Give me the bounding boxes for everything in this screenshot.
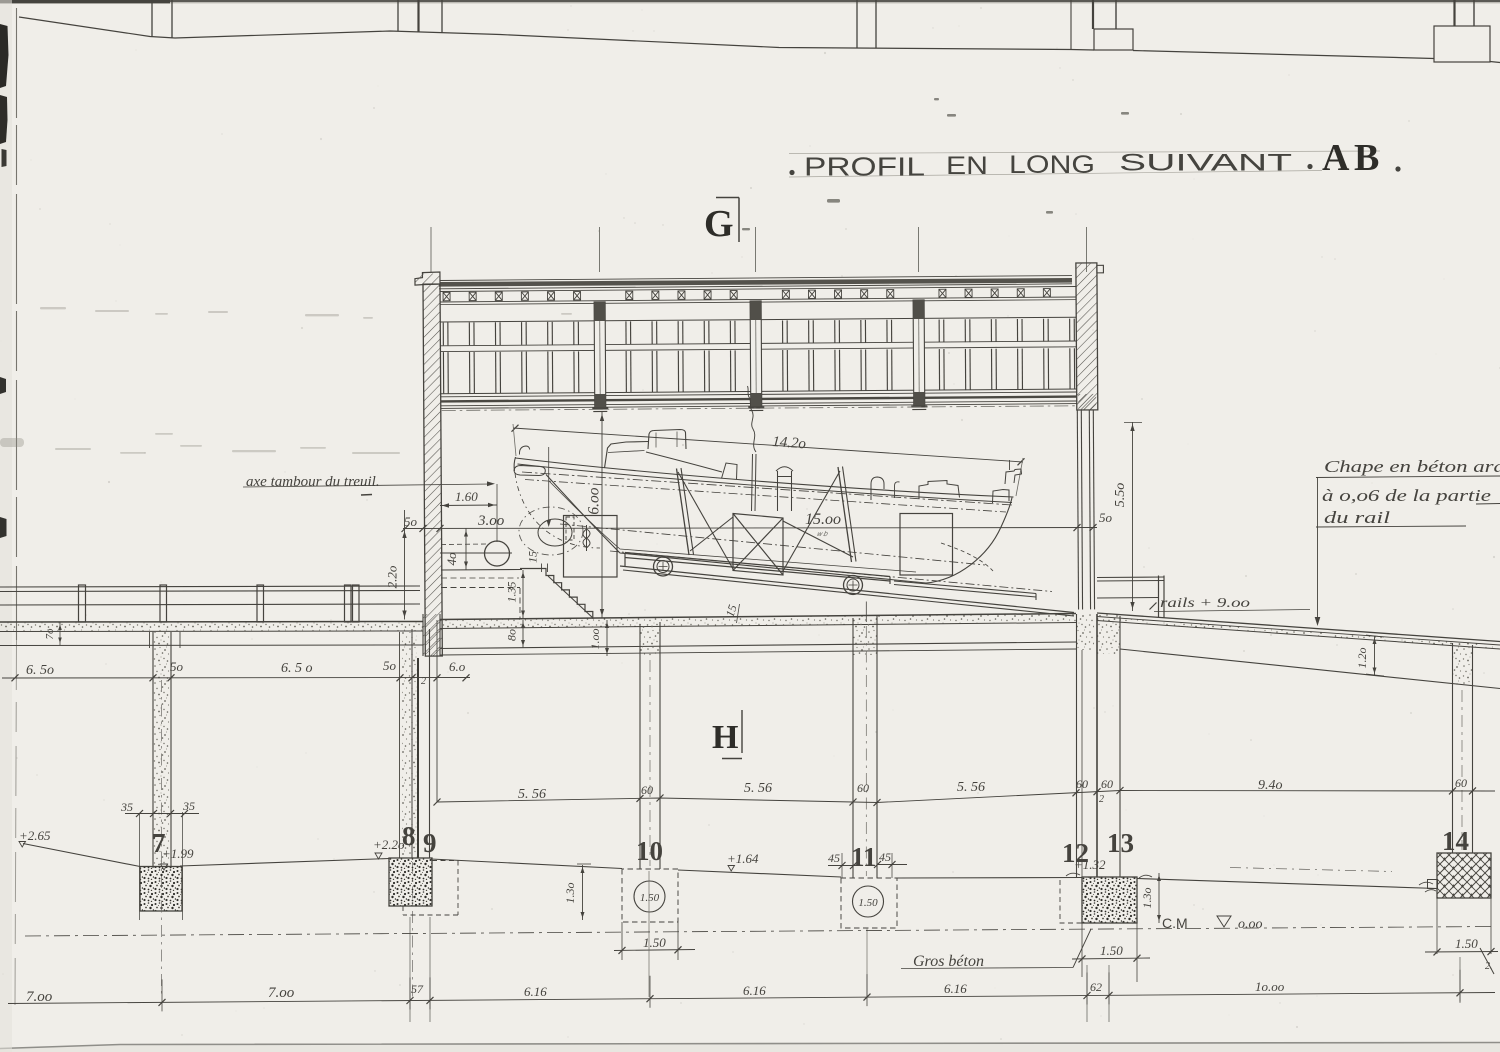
svg-text:35: 35: [120, 800, 133, 814]
svg-text:o.oo: o.oo: [1238, 917, 1263, 932]
svg-text:5.5o: 5.5o: [1113, 483, 1128, 508]
svg-text:du rail: du rail: [1324, 508, 1391, 527]
svg-text:1.oo: 1.oo: [588, 629, 602, 650]
svg-text:H: H: [712, 719, 738, 756]
svg-text:5o: 5o: [383, 658, 397, 673]
svg-text:Chape en béton ara: Chape en béton ara: [1324, 457, 1500, 476]
svg-text:axe tambour du treuil.: axe tambour du treuil.: [246, 474, 380, 490]
svg-text:6. 5 o: 6. 5 o: [281, 661, 313, 676]
svg-text:10: 10: [636, 836, 663, 866]
svg-text:60: 60: [1076, 777, 1088, 791]
svg-text:5. 56: 5. 56: [957, 780, 985, 795]
svg-text:1.50: 1.50: [1455, 936, 1478, 951]
svg-text:LONG: LONG: [1009, 151, 1095, 179]
svg-text:4o: 4o: [444, 552, 459, 566]
svg-text:1.50: 1.50: [858, 897, 878, 909]
svg-text:𝑤 𝑏: 𝑤 𝑏: [817, 530, 828, 538]
svg-text:1.50: 1.50: [643, 935, 666, 950]
svg-text:B: B: [1354, 137, 1379, 179]
svg-text:EN: EN: [946, 152, 988, 180]
svg-text:6.16: 6.16: [743, 983, 766, 998]
svg-text:2.2o: 2.2o: [385, 565, 400, 588]
svg-text:7.oo: 7.oo: [26, 989, 53, 1005]
svg-text:5o: 5o: [170, 659, 184, 674]
svg-text:1.3o: 1.3o: [563, 883, 577, 904]
svg-text:45: 45: [879, 850, 891, 864]
svg-text:14.2o: 14.2o: [772, 434, 807, 452]
svg-text:2: 2: [1099, 794, 1104, 805]
svg-text:PROFIL: PROFIL: [804, 152, 925, 182]
svg-text:A: A: [1322, 137, 1350, 179]
svg-text:9.4o: 9.4o: [1258, 778, 1283, 793]
svg-text:1o.oo: 1o.oo: [1255, 979, 1285, 994]
svg-text:60: 60: [641, 783, 653, 797]
svg-text:35: 35: [182, 799, 195, 813]
svg-text:5. 56: 5. 56: [744, 781, 772, 796]
svg-text:8: 8: [402, 821, 416, 851]
svg-text:60: 60: [857, 781, 869, 795]
svg-text:14: 14: [1442, 826, 1469, 856]
svg-text:G: G: [704, 203, 734, 245]
svg-text:7.oo: 7.oo: [268, 985, 295, 1001]
svg-text:+1.64: +1.64: [727, 851, 759, 866]
svg-text:5o: 5o: [1099, 510, 1113, 525]
svg-text:6.o: 6.o: [449, 659, 466, 674]
svg-text:+2.2o: +2.2o: [373, 837, 405, 852]
svg-text:3.oo: 3.oo: [477, 513, 505, 529]
svg-text:5o: 5o: [404, 514, 418, 529]
svg-text:1.2o: 1.2o: [1355, 648, 1369, 669]
svg-text:2: 2: [421, 676, 426, 687]
svg-text:6.16: 6.16: [944, 981, 967, 996]
svg-text:45: 45: [828, 851, 840, 865]
svg-text:6.oo: 6.oo: [586, 487, 603, 514]
svg-text:SUIVANT: SUIVANT: [1119, 150, 1293, 177]
svg-text:60: 60: [1455, 776, 1467, 790]
svg-text:1.60: 1.60: [455, 489, 478, 504]
svg-text:7: 7: [152, 828, 166, 858]
svg-text:1.50: 1.50: [640, 892, 660, 904]
svg-text:8o: 8o: [505, 629, 519, 641]
svg-text:rails + 9.oo: rails + 9.oo: [1160, 595, 1250, 610]
svg-text:9: 9: [423, 828, 437, 858]
svg-text:6.16: 6.16: [524, 984, 547, 999]
svg-text:1.35: 1.35: [505, 582, 519, 603]
svg-text:6. 5o: 6. 5o: [26, 663, 54, 678]
svg-text:62: 62: [1090, 980, 1102, 994]
svg-text:12: 12: [1062, 838, 1089, 868]
svg-text:13: 13: [1107, 828, 1134, 858]
svg-text:7o: 7o: [44, 628, 56, 640]
svg-text:+2.65: +2.65: [19, 828, 51, 843]
svg-text:à o,o6 de la partie: à o,o6 de la partie: [1322, 486, 1491, 505]
svg-text:60: 60: [1101, 777, 1113, 791]
svg-text:11: 11: [851, 842, 877, 872]
svg-text:15.oo: 15.oo: [805, 511, 841, 528]
svg-text:+1.99: +1.99: [162, 846, 194, 861]
svg-text:57: 57: [411, 982, 424, 996]
svg-text:5. 56: 5. 56: [518, 787, 546, 802]
svg-text:2.: 2.: [1485, 961, 1493, 972]
svg-text:1.3o: 1.3o: [1140, 888, 1154, 909]
svg-text:1.50: 1.50: [1100, 943, 1123, 958]
svg-text:Gros béton: Gros béton: [913, 953, 984, 970]
